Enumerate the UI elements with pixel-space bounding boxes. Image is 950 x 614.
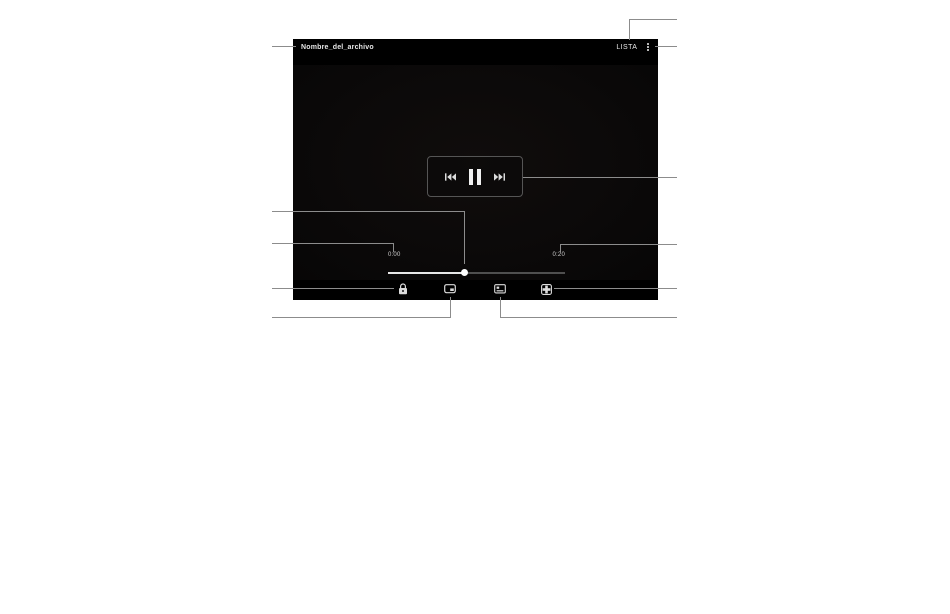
playback-controls bbox=[427, 156, 523, 197]
callout-line-duration-drop bbox=[560, 244, 561, 252]
callout-line-editor bbox=[500, 317, 677, 318]
skip-previous-button[interactable] bbox=[445, 173, 456, 181]
pause-icon bbox=[469, 169, 481, 185]
callout-line-duration bbox=[560, 244, 677, 245]
callout-line-seek-thumb bbox=[272, 211, 465, 212]
playlist-button[interactable]: LISTA bbox=[616, 44, 637, 51]
file-name-label: Nombre_del_archivo bbox=[301, 44, 374, 51]
fit-to-screen-icon bbox=[541, 284, 552, 295]
callout-line-elapsed-time-drop bbox=[393, 243, 394, 252]
skip-next-icon bbox=[494, 173, 505, 181]
callout-line-playlist-drop bbox=[629, 19, 630, 40]
video-editor-icon bbox=[494, 284, 506, 294]
player-top-bar: Nombre_del_archivo LISTA bbox=[293, 39, 658, 55]
more-options-icon[interactable] bbox=[646, 42, 650, 52]
callout-line-seek-thumb-drop bbox=[464, 211, 465, 264]
callout-line-popup-drop bbox=[450, 297, 451, 317]
callout-line-popup bbox=[272, 317, 451, 318]
lock-button[interactable] bbox=[397, 283, 409, 295]
callout-line-fit-to-screen bbox=[554, 288, 677, 289]
popup-player-icon bbox=[444, 284, 456, 294]
duration-label: 0:20 bbox=[553, 252, 565, 258]
popup-player-button[interactable] bbox=[444, 283, 456, 295]
callout-line-file-name bbox=[272, 46, 296, 47]
seekbar-played bbox=[388, 272, 464, 274]
fit-to-screen-button[interactable] bbox=[540, 283, 552, 295]
video-editor-button[interactable] bbox=[494, 283, 506, 295]
skip-next-button[interactable] bbox=[494, 173, 505, 181]
callout-line-more-options bbox=[655, 46, 677, 47]
callout-line-lock bbox=[272, 288, 394, 289]
seekbar-thumb[interactable] bbox=[461, 269, 468, 276]
pause-button[interactable] bbox=[469, 169, 481, 185]
elapsed-time-label: 0:00 bbox=[388, 252, 400, 258]
seek-bar[interactable] bbox=[388, 268, 565, 277]
manual-diagram-page: Nombre_del_archivo LISTA bbox=[0, 0, 950, 614]
callout-line-editor-drop bbox=[500, 297, 501, 317]
lock-icon bbox=[398, 283, 408, 295]
top-bar-actions: LISTA bbox=[616, 42, 650, 52]
callout-line-elapsed-time bbox=[272, 243, 394, 244]
video-player: Nombre_del_archivo LISTA bbox=[293, 39, 658, 300]
callout-line-playlist bbox=[629, 19, 677, 20]
callout-line-playback-controls bbox=[523, 177, 677, 178]
skip-previous-icon bbox=[445, 173, 456, 181]
